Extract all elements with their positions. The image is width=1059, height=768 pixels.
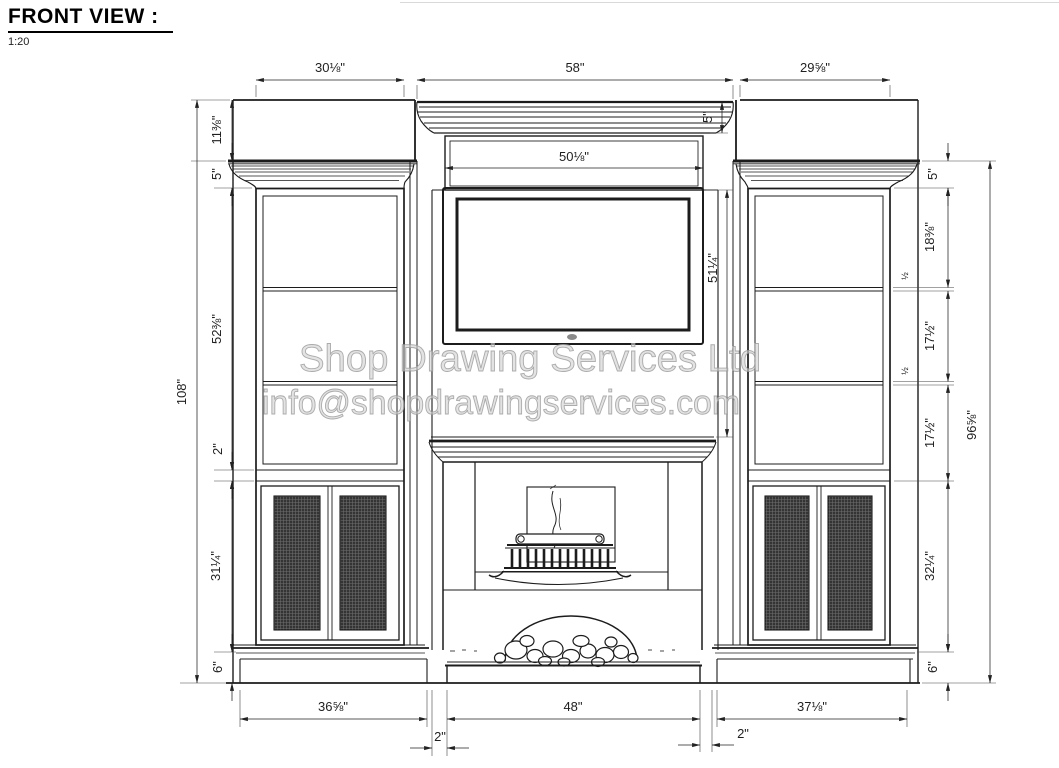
dim-right-shelf-top: 18⅜" [922,222,937,252]
left-mid-rail [256,470,404,481]
dim-right-shelf-bot: 17½" [922,418,937,448]
right-base [712,645,918,683]
dim-bottom-gap-right: 2" [737,726,749,741]
firebox-back-panel [527,487,615,562]
front-view-drawing: 30⅛" 58" 29⅝" 50⅛" 5" 51¼" 108" 11⅜" 5" … [0,0,1059,768]
dim-left-band-height: 11⅜" [209,115,224,144]
watermark-line1: Shop Drawing Services Ltd [299,338,761,380]
left-door-mesh-panel-1 [274,496,320,630]
dim-shelf-thickness-1: ½ [900,272,910,280]
left-door-mesh-panel-2 [340,496,386,630]
dim-right-base-height: 6" [925,661,940,673]
right-upper-cabinet [755,196,883,464]
dim-overall-height: 108" [174,378,189,405]
dim-right-crown-height: 5" [925,168,940,180]
log [516,534,604,544]
left-upper-cabinet [263,196,397,464]
watermark-line2: info@shopdrawingservices.com [262,384,740,422]
dim-right-face-height: 96⅝" [964,410,979,440]
hearth-slab [445,662,702,683]
dim-left-rail-height: 2" [210,443,225,455]
firebox-opening [475,462,668,590]
dim-bottom-right-width: 37⅛" [797,699,827,714]
right-band [736,100,918,161]
right-door-mesh-panel-1 [765,496,809,630]
left-base [231,645,429,683]
dim-left-upper-height: 52⅜" [209,314,224,344]
dim-shelf-thickness-2: ½ [900,367,910,375]
dim-right-doors-height: 32¼" [922,551,937,581]
log-grate [489,534,631,585]
surround-legs [443,462,702,650]
dim-left-crown-height: 5" [209,168,224,180]
left-band [233,100,415,161]
right-crown-molding [736,164,917,189]
tv [443,188,703,344]
fireplace [443,462,702,683]
right-door-mesh-panel-2 [828,496,872,630]
dim-bottom-left-width: 36⅝" [318,699,348,714]
view-scale: 1:20 [8,36,173,48]
dim-left-doors-height: 31¼" [208,551,223,581]
right-shelves [755,288,883,386]
title-block: FRONT VIEW : 1:20 [8,5,173,48]
left-door-stiles [328,486,332,640]
dim-top-center-width: 58" [565,60,584,75]
firebox-floor [443,572,702,590]
dim-center-crown-height: 5" [700,111,715,123]
dim-bottom-gap-left: 2" [434,729,446,744]
right-door-stiles [817,486,821,640]
dim-right-shelf-mid: 17½" [922,321,937,351]
center-crown-molding [417,102,734,133]
dim-hearth-width: 48" [563,699,582,714]
view-title: FRONT VIEW : [8,5,173,33]
left-crown-molding [229,164,414,189]
mantel [429,437,716,462]
dim-frieze-width: 50⅛" [559,149,589,164]
watermark: Shop Drawing Services Ltd info@shopdrawi… [262,338,761,422]
drawing-sheet: FRONT VIEW : 1:20 [0,0,1059,768]
dim-top-right-width: 29⅝" [800,60,830,75]
dim-top-left-width: 30⅛" [315,60,345,75]
dim-tv-height: 51¼" [705,253,720,283]
right-tower [712,100,920,683]
right-mid-rail [748,470,890,481]
tv-screen [457,199,689,330]
dim-left-base-height: 6" [210,661,225,673]
